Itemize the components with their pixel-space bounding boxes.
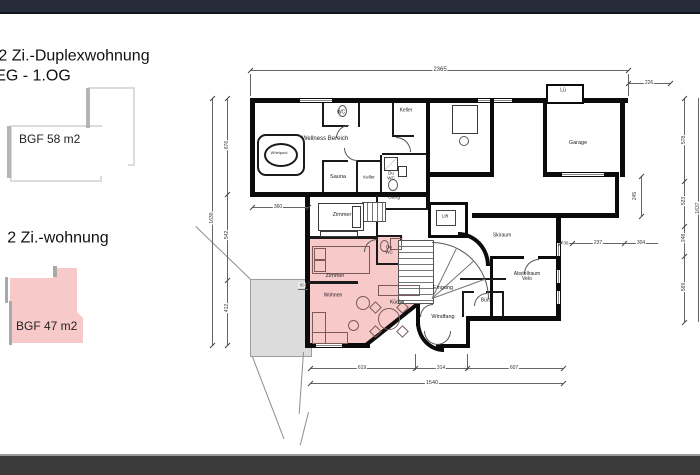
floorplan-page: 2 Zi.-Duplexwohnung EG - 1.OG BGF 58 m2 … <box>0 0 700 475</box>
terrace <box>250 279 312 357</box>
wall-velo-left <box>490 256 493 318</box>
legend-duplex-tick-2 <box>7 126 11 178</box>
wall-living-divider <box>308 281 358 284</box>
room-label-eingang: Eingang <box>433 286 453 292</box>
room-label-wc: WC <box>337 110 345 115</box>
wall-sauna-right <box>356 160 358 192</box>
room-label-wohnen: Wohnen <box>324 293 343 298</box>
wall-wing-bottom <box>466 316 561 321</box>
dim-label-226: 226 <box>644 80 654 86</box>
dim-label-step-1: 36 <box>562 241 569 246</box>
boiler-circle <box>459 136 469 146</box>
dim-label-left-1: 676 <box>224 140 230 150</box>
wall-boiler-bottom <box>428 172 494 177</box>
title-bar <box>0 0 700 12</box>
dim-label-right-1: 578 <box>681 135 687 145</box>
room-label-duwc-pink: Du WC <box>383 245 395 254</box>
legend-duplex-area: BGF 58 m2 <box>19 132 80 146</box>
bed-pink-pillow-1 <box>314 248 326 260</box>
door-arc-keller <box>396 137 411 152</box>
wall-flat-left <box>305 192 310 348</box>
room-label-whirlpool: Whirlpool <box>271 151 288 155</box>
dim-label-top-total: 2365 <box>432 67 447 73</box>
dim-label-step-2: 237 <box>593 240 603 246</box>
wall-duwc-pink-top <box>378 235 402 237</box>
legend-duplex-title: 2 Zi.-Duplexwohnung <box>0 49 150 66</box>
legend-flat-tick-1 <box>5 277 8 303</box>
dim-tick <box>225 343 231 349</box>
wall-wing-top <box>472 213 619 218</box>
kitchen-chair-4 <box>396 325 409 338</box>
wall-sauna-left <box>322 160 324 192</box>
legend-flat-title: 2 Zi.-wohnung <box>7 231 108 248</box>
bed-upper-pillow <box>352 206 361 228</box>
dim-label-80: 80 <box>298 283 305 288</box>
wall-left-upper <box>250 98 255 197</box>
shower-upper <box>384 157 398 171</box>
wall-wc-left <box>322 103 324 127</box>
window-right-2-line <box>558 270 559 283</box>
wall-garage-step <box>615 172 619 217</box>
legend-flat-tick-3 <box>9 301 12 345</box>
wall-wc-right <box>358 103 360 127</box>
dim-label-right-3: 248 <box>681 233 687 243</box>
room-label-zimmer-upper: Zimmer <box>333 213 352 219</box>
wall-wing-right <box>556 213 561 321</box>
legend-flat-area: BGF 47 m2 <box>16 319 77 333</box>
room-label-garage: Garage <box>569 141 587 147</box>
wardrobe-upper <box>320 231 358 237</box>
toilet-upper <box>388 179 398 191</box>
window-top-2-line <box>478 100 512 101</box>
dim-tick <box>668 81 674 87</box>
room-label-sauna: Sauna <box>330 175 346 181</box>
path-line-2 <box>299 352 304 414</box>
wall-sauna-top <box>322 160 348 162</box>
bed-pink-pillow-2 <box>314 260 326 272</box>
wall-duwc-top <box>382 153 426 155</box>
wall-gang-bottom <box>380 208 428 210</box>
path-line-1 <box>252 357 284 440</box>
room-label-windfang: Windfang <box>431 315 454 321</box>
room-label-kueche: Küche <box>390 300 404 305</box>
dim-tick <box>561 381 567 387</box>
bottom-bar <box>0 456 700 475</box>
room-label-keller-top: Keller <box>400 108 413 113</box>
dim-label-bottom-1: 619 <box>357 365 367 371</box>
garage-door-line <box>562 174 604 175</box>
room-label-duwc-upper: Du WC <box>385 171 397 180</box>
dim-label-bottom-2: 314 <box>436 365 446 371</box>
room-label-skiraum: Skiraum <box>493 233 511 238</box>
dim-label-left-total: 1630 <box>209 211 215 224</box>
dim-label-right-4: 569 <box>681 282 687 292</box>
dim-label-right-total: 1637 <box>695 201 700 214</box>
dim-tick <box>626 68 632 74</box>
room-label-gang: Gang <box>388 195 400 200</box>
door-arc-entry-right <box>437 331 451 345</box>
room-label-abstellraum: Abstellraum Velo <box>510 272 544 283</box>
room-label-lueftung: Lü <box>560 88 566 93</box>
wall-keller-left <box>392 103 394 137</box>
window-bottom-1-line <box>316 345 342 346</box>
sink-upper <box>398 166 407 177</box>
dim-line-80 <box>298 289 308 290</box>
room-label-buero: Büro <box>481 298 492 303</box>
window-right-3-line <box>558 291 559 304</box>
dim-tick <box>210 343 216 349</box>
kitchen-table <box>378 308 400 330</box>
wall-keller-small-top <box>356 160 382 162</box>
wall-wellness-bottom <box>250 192 430 197</box>
wall-boiler-divider <box>490 98 494 175</box>
armchair <box>356 296 370 310</box>
window-top-1-line <box>300 100 332 101</box>
gang-steps <box>362 202 386 222</box>
wall-windfang-bottom <box>436 344 470 348</box>
dim-ext-top-right <box>628 74 629 96</box>
dim-tick <box>639 214 645 220</box>
title-bar-edge <box>0 12 700 14</box>
sofa-front <box>312 332 348 344</box>
wall-garage-left <box>543 98 547 177</box>
legend-duplex-shape-merge <box>92 127 128 176</box>
legend-duplex-tick-1 <box>86 88 90 128</box>
coffee-table <box>348 320 359 331</box>
legend-flat-tick-2 <box>53 266 57 277</box>
legend-flat-shape <box>8 266 86 346</box>
room-label-wellness: Wellness Bereich <box>302 136 348 142</box>
wall-garage-right <box>620 98 625 177</box>
dim-line-245 <box>641 176 642 216</box>
room-label-zimmer-pink: Zimmer <box>326 274 345 280</box>
dim-label-left-2: 542 <box>224 230 230 240</box>
dim-label-360: 360 <box>273 204 283 210</box>
dim-label-step-3: 304 <box>636 240 646 246</box>
legend-duplex-subtitle: EG - 1.OG <box>0 69 71 86</box>
path-line-3 <box>300 412 309 445</box>
wall-wellness-divider <box>426 98 430 210</box>
dim-label-left-3: 412 <box>224 303 230 313</box>
dim-label-245: 245 <box>632 191 638 201</box>
wall-buero-right <box>502 291 504 317</box>
dim-label-right-2: 523 <box>681 196 687 206</box>
room-label-lift: Lift <box>442 215 448 220</box>
stair-curved-wall <box>458 232 490 266</box>
dim-ext-top-left <box>250 74 251 96</box>
dim-label-bottom-total: 1540 <box>425 380 439 386</box>
dim-label-bottom-3: 607 <box>509 365 519 371</box>
terrain-line <box>195 226 250 280</box>
room-label-keller-small: Keller <box>363 176 375 181</box>
dim-tick <box>682 320 688 326</box>
dim-tick <box>561 366 567 372</box>
kitchen-counter <box>378 285 420 296</box>
boiler-tank <box>452 105 478 134</box>
